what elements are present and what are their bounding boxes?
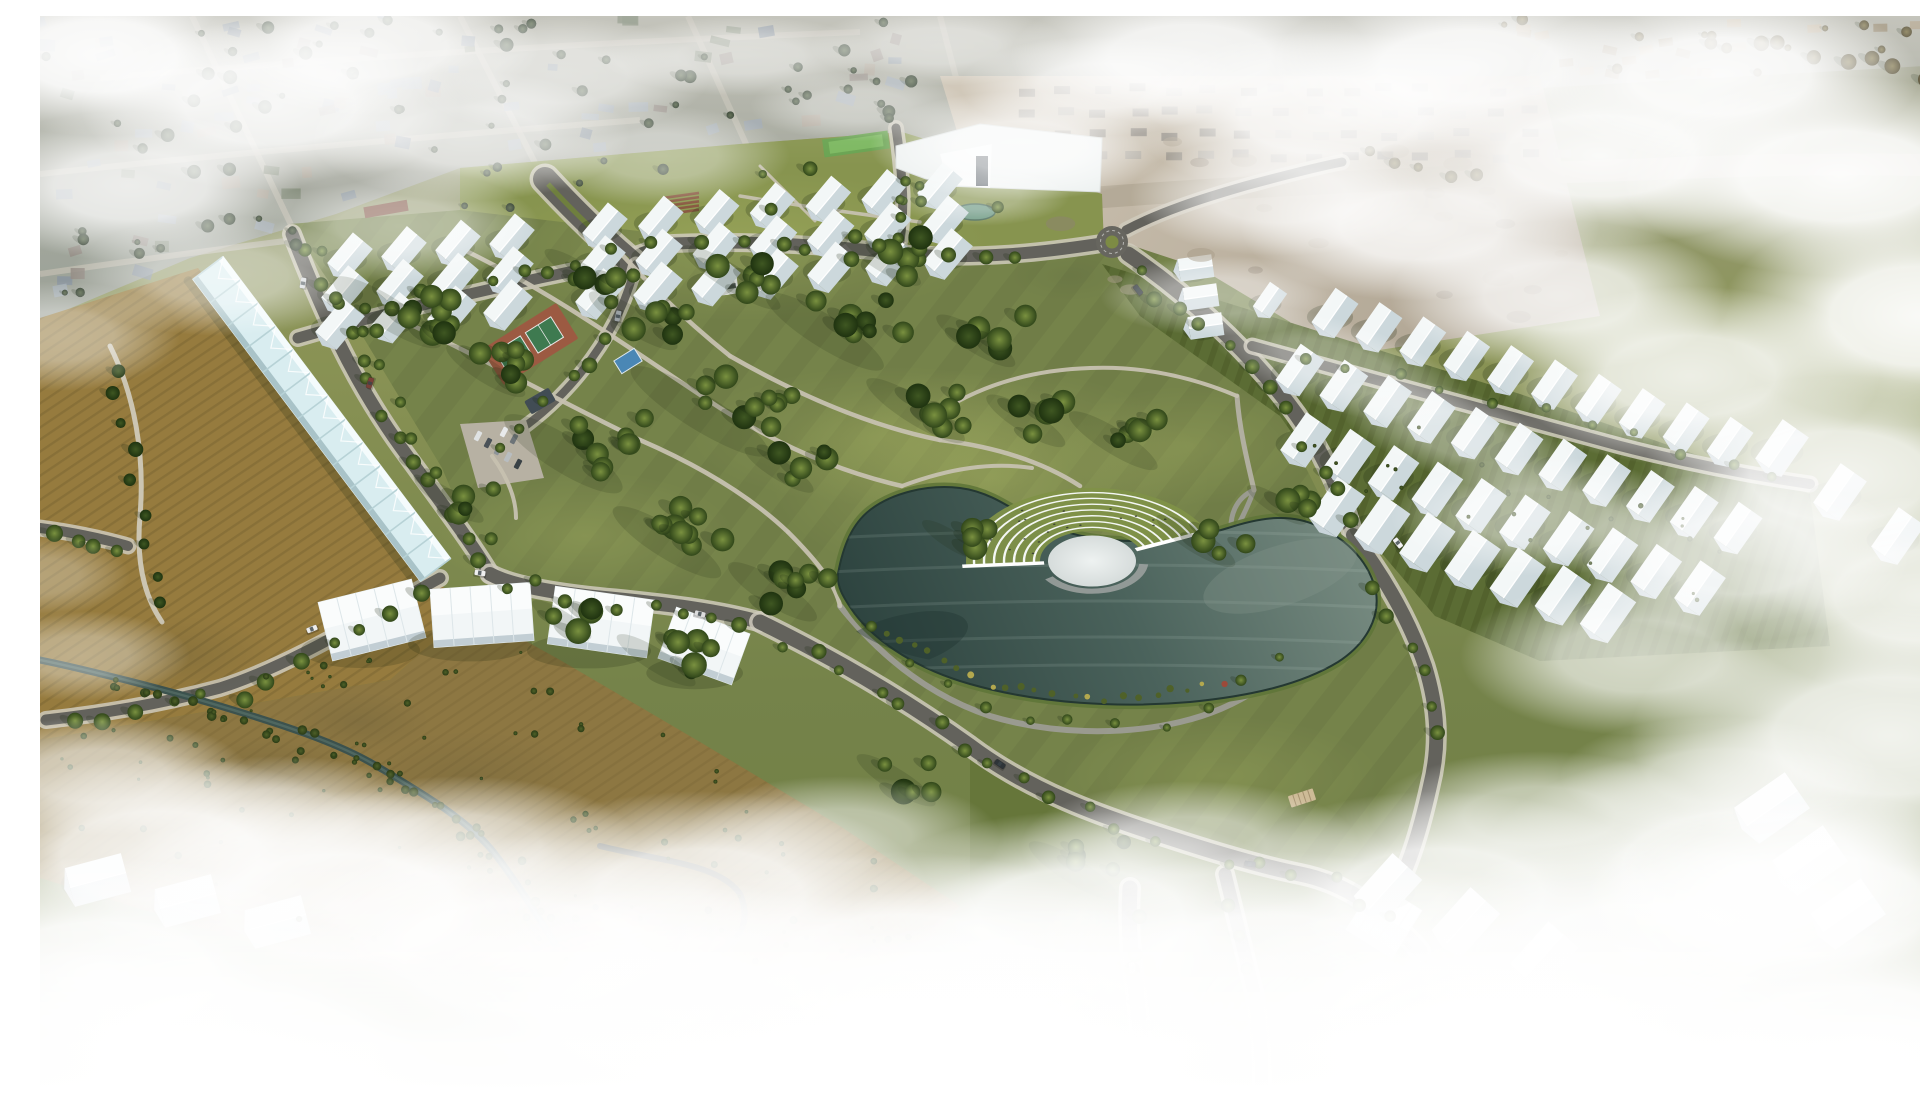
aerial-masterplan-rendering — [40, 16, 1920, 1096]
rendering-canvas — [40, 16, 1920, 1096]
